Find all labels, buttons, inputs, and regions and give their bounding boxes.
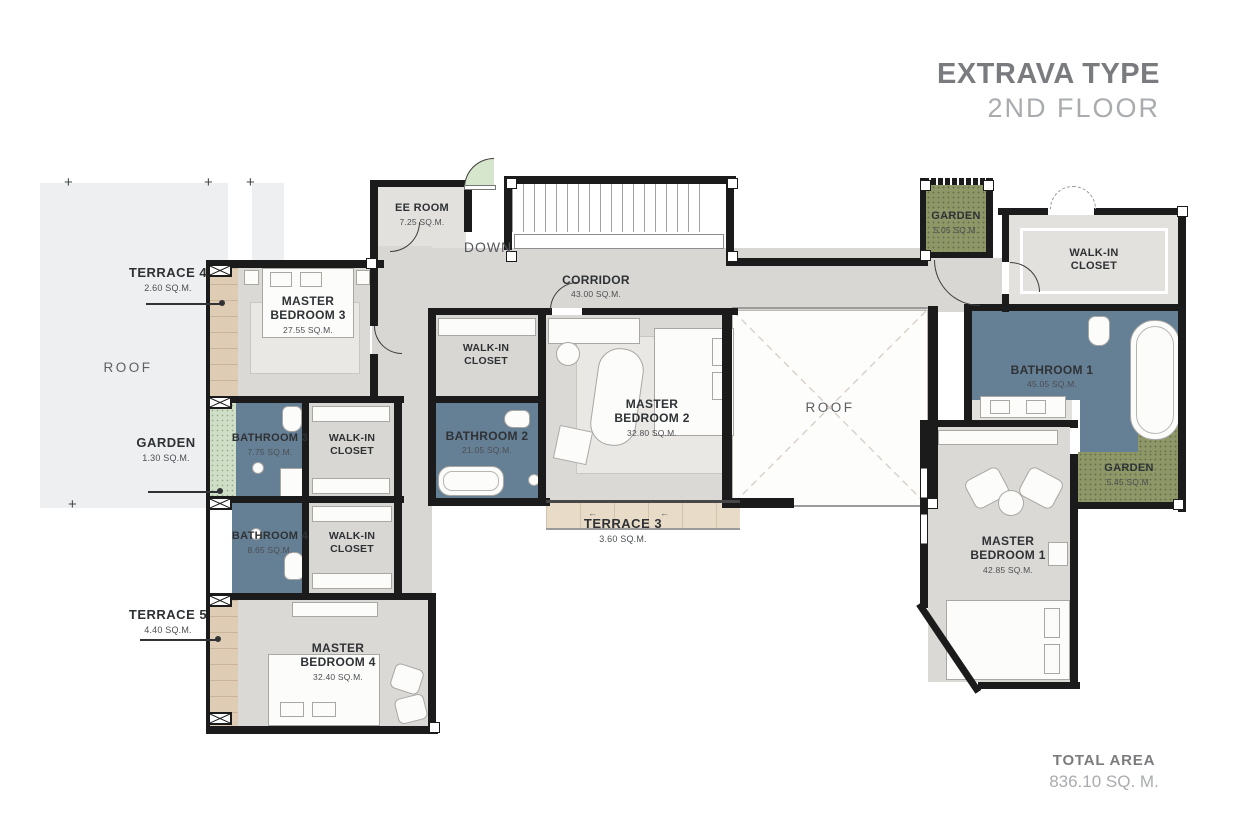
label-walk-in-closet-center: WALK-IN CLOSET <box>451 342 521 367</box>
room-name: BATHROOM 1 <box>1005 363 1099 377</box>
column-marker <box>1177 206 1188 217</box>
plan-title: EXTRAVA TYPE <box>856 58 1160 91</box>
vanity-symbol <box>280 468 304 498</box>
room-area: 5.05 SQ.M. <box>924 225 988 235</box>
wall-segment <box>1076 502 1184 509</box>
room-name: MASTER BEDROOM 1 <box>962 534 1054 563</box>
side-table-symbol <box>998 490 1024 516</box>
room-area: 7.75 SQ.M. <box>225 447 315 457</box>
plan-subtitle: 2ND FLOOR <box>856 93 1160 124</box>
column-marker <box>920 180 931 191</box>
side-table-symbol <box>556 342 580 366</box>
label-master-bedroom-2: MASTER BEDROOM 2 32.80 SQ.M. <box>606 397 698 438</box>
door-leaf-symbol <box>464 185 496 190</box>
sink-pedestal-symbol <box>252 462 264 474</box>
column-marker <box>727 178 738 189</box>
pillow-symbol <box>1044 608 1060 638</box>
total-area-label: TOTAL AREA <box>1018 752 1190 769</box>
window-symbol <box>921 514 927 544</box>
wall-segment <box>370 354 378 402</box>
wall-segment <box>964 304 1186 311</box>
bathtub-symbol <box>438 466 504 496</box>
room-name: WALK-IN CLOSET <box>1052 247 1136 273</box>
label-master-bedroom-4: MASTER BEDROOM 4 32.40 SQ.M. <box>292 641 384 682</box>
door-opening <box>1048 208 1094 215</box>
leader-dot <box>215 636 221 642</box>
pillow-symbol <box>1044 644 1060 674</box>
room-area: 32.80 SQ.M. <box>606 428 698 438</box>
dresser-symbol <box>938 430 1058 445</box>
room-area: 45.05 SQ.M. <box>1005 379 1099 389</box>
leader-dot <box>217 488 223 494</box>
label-terrace-4: TERRACE 4 2.60 SQ.M. <box>112 265 224 293</box>
label-garden-3: GARDEN 5.45 SQ.M. <box>1082 462 1176 487</box>
wall-segment <box>928 306 938 508</box>
pillow-symbol <box>280 702 304 717</box>
room-name: WALK-IN CLOSET <box>317 432 387 457</box>
label-garden-2: GARDEN 5.05 SQ.M. <box>924 210 988 235</box>
nightstand-symbol <box>244 270 259 285</box>
door-swing-dashed-symbol <box>1050 186 1096 209</box>
closet-shelf-symbol <box>312 478 390 494</box>
leader-line <box>146 303 222 305</box>
roof-area-left-strip <box>252 183 284 264</box>
wall-segment <box>428 308 436 504</box>
survey-cross-mark: + <box>64 175 73 190</box>
leader-line <box>140 639 218 641</box>
toilet-symbol <box>282 406 302 432</box>
column-hatch-box <box>208 497 232 510</box>
room-name: BATHROOM 2 <box>442 429 532 443</box>
label-bathroom-2: BATHROOM 2 21.05 SQ.M. <box>442 429 532 455</box>
column-hatch-box <box>208 396 232 409</box>
column-marker <box>1173 499 1184 510</box>
roof-edge-line <box>794 505 930 507</box>
wall-segment <box>726 258 928 266</box>
room-area: 3.60 SQ.M. <box>558 534 688 544</box>
total-area-block: TOTAL AREA 836.10 SQ. M. <box>1018 752 1190 792</box>
bathtub-symbol <box>1130 320 1180 440</box>
wall-segment <box>978 682 1080 689</box>
room-area: 1.30 SQ.M. <box>110 453 222 463</box>
door-opening <box>1070 428 1078 454</box>
total-area-value: 836.10 SQ. M. <box>1018 772 1190 792</box>
survey-cross-mark: + <box>204 175 213 190</box>
wall-segment <box>428 498 550 506</box>
wall-segment <box>538 312 546 504</box>
pillow-symbol <box>312 702 336 717</box>
column-marker <box>366 258 377 269</box>
pillow-symbol <box>300 272 322 287</box>
label-garden-1: GARDEN 1.30 SQ.M. <box>110 435 222 463</box>
label-terrace-5: TERRACE 5 4.40 SQ.M. <box>112 607 224 635</box>
column-marker <box>727 251 738 262</box>
sink-symbol <box>990 400 1010 414</box>
room-name: GARDEN <box>1082 462 1176 475</box>
column-hatch-box <box>208 594 232 607</box>
toilet-symbol <box>284 552 304 580</box>
wall-segment <box>428 308 548 315</box>
column-marker <box>983 180 994 191</box>
column-marker <box>429 722 440 733</box>
column-hatch-box <box>208 712 232 725</box>
wall-segment <box>370 264 378 326</box>
room-area: 7.25 SQ.M. <box>377 217 467 227</box>
room-name: EE ROOM <box>377 202 467 215</box>
label-terrace-3: TERRACE 3 3.60 SQ.M. <box>558 516 688 544</box>
room-name: BATHROOM 3 <box>225 432 315 445</box>
label-bathroom-3: BATHROOM 3 7.75 SQ.M. <box>225 432 315 457</box>
room-name: WALK-IN CLOSET <box>451 342 521 367</box>
wall-segment <box>428 396 546 403</box>
fence-hatch <box>922 178 990 185</box>
wardrobe-symbol <box>292 602 378 617</box>
bathtub-inner-line <box>443 471 499 491</box>
wall-segment <box>1070 420 1078 688</box>
stair-handrail-symbol <box>514 234 724 249</box>
survey-cross-mark: + <box>246 175 255 190</box>
room-area: 5.45 SQ.M. <box>1082 477 1176 487</box>
label-bathroom-1: BATHROOM 1 45.05 SQ.M. <box>1005 363 1099 389</box>
room-name: WALK-IN CLOSET <box>317 530 387 555</box>
label-walk-in-closet-right: WALK-IN CLOSET <box>1052 247 1136 273</box>
wall-segment <box>964 304 972 426</box>
door-opening <box>1002 262 1009 294</box>
room-name: GARDEN <box>110 435 222 451</box>
pouf-symbol <box>553 425 593 465</box>
room-name: TERRACE 4 <box>112 265 224 281</box>
label-master-bedroom-3: MASTER BEDROOM 3 27.55 SQ.M. <box>262 294 354 335</box>
wall-segment <box>428 593 436 734</box>
stairs-symbol <box>512 184 710 232</box>
label-down: DOWN <box>452 239 524 255</box>
room-name: GARDEN <box>924 210 988 223</box>
roof-edge-line <box>732 307 928 309</box>
wall-segment <box>920 420 1078 427</box>
bathtub-inner-line <box>1136 326 1174 434</box>
window-symbol <box>921 468 927 498</box>
survey-cross-mark: + <box>68 497 77 512</box>
sink-symbol <box>1026 400 1046 414</box>
roof-center-label: ROOF <box>733 400 927 415</box>
room-area: 27.55 SQ.M. <box>262 325 354 335</box>
label-corridor: CORRIDOR 43.00 SQ.M. <box>536 273 656 299</box>
door-swing-symbol-green <box>464 158 494 188</box>
closet-shelf-symbol <box>312 573 392 589</box>
wall-segment <box>504 176 736 184</box>
column-marker <box>920 250 931 261</box>
room-area: 8.65 SQ.M. <box>225 545 315 555</box>
wall-segment <box>206 260 384 268</box>
label-bathroom-4: BATHROOM 4 8.65 SQ.M. <box>225 530 315 555</box>
room-area: 2.60 SQ.M. <box>112 283 224 293</box>
wall-segment <box>1002 208 1009 312</box>
label-walk-in-closet-2: WALK-IN CLOSET <box>317 530 387 555</box>
room-area: 43.00 SQ.M. <box>536 289 656 299</box>
room-name: TERRACE 5 <box>112 607 224 623</box>
column-marker <box>506 178 517 189</box>
label-ee-room: EE ROOM 7.25 SQ.M. <box>377 202 467 227</box>
room-area: 32.40 SQ.M. <box>292 672 384 682</box>
leader-dot <box>219 300 225 306</box>
wall-segment <box>1178 208 1186 512</box>
room-name: MASTER BEDROOM 2 <box>606 397 698 426</box>
wall-segment <box>206 726 438 734</box>
wall-segment <box>370 180 472 187</box>
column-marker <box>927 498 938 509</box>
pillow-symbol <box>270 272 292 287</box>
room-area: 4.40 SQ.M. <box>112 625 224 635</box>
slide-arrow-icon: ← <box>588 509 597 518</box>
label-master-bedroom-1: MASTER BEDROOM 1 42.85 SQ.M. <box>962 534 1054 575</box>
label-walk-in-closet-1: WALK-IN CLOSET <box>317 432 387 457</box>
room-area: 21.05 SQ.M. <box>442 445 532 455</box>
toilet-symbol <box>504 410 530 428</box>
closet-shelf-symbol <box>312 406 390 422</box>
leader-line <box>148 491 220 493</box>
room-name: TERRACE 3 <box>558 516 688 532</box>
floor-plan-canvas: + + + + ROOF <box>0 0 1236 839</box>
room-name: MASTER BEDROOM 4 <box>292 641 384 670</box>
plan-title-block: EXTRAVA TYPE 2ND FLOOR <box>856 58 1160 124</box>
sliding-glass-wall <box>546 500 740 503</box>
room-name: MASTER BEDROOM 3 <box>262 294 354 323</box>
toilet-symbol <box>1088 316 1110 346</box>
closet-shelf-symbol <box>438 318 536 336</box>
wall-segment <box>394 396 402 600</box>
roof-left-label: ROOF <box>78 360 178 375</box>
closet-shelf-symbol <box>312 506 392 522</box>
room-area: 42.85 SQ.M. <box>962 565 1054 575</box>
wardrobe-symbol <box>548 318 640 344</box>
slide-arrow-icon: ← <box>660 509 669 518</box>
nightstand-symbol <box>356 270 370 285</box>
room-name: BATHROOM 4 <box>225 530 315 543</box>
wall-segment <box>722 308 732 506</box>
room-name: CORRIDOR <box>536 273 656 287</box>
